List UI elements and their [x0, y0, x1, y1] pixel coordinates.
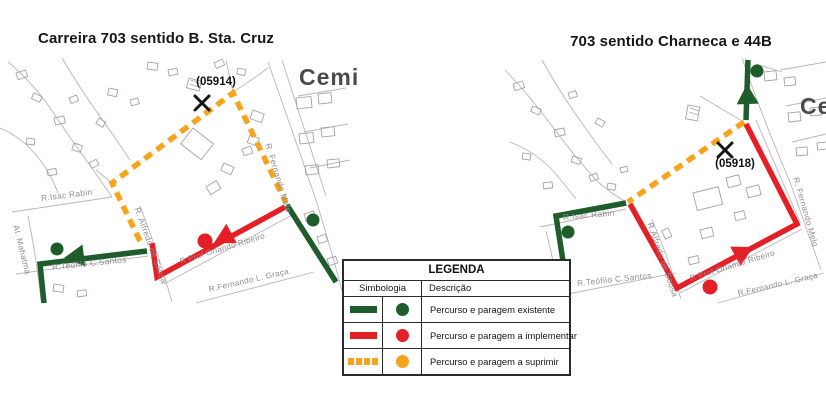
legend-existing-stop-swatch: [396, 303, 409, 316]
legend-existing-line-swatch: [350, 306, 377, 313]
legend-implement-stop-swatch: [396, 329, 409, 342]
legend-column-descricao: Descrição: [421, 281, 569, 296]
right-cemetery-label: Ce: [800, 93, 826, 120]
legend-row-suppress: Percurso e paragem a suprimir: [344, 348, 569, 374]
left-removed-stop-x-marker: [195, 96, 209, 110]
legend-implement-description: Percurso e paragem a implementar: [421, 323, 577, 348]
right-implement-stop-dot: [703, 280, 718, 295]
left-panel-title: Carreira 703 sentido B. Sta. Cruz: [31, 30, 281, 47]
legend-title: LEGENDA: [344, 261, 569, 281]
left-removed-stop-code: (05914): [186, 76, 246, 88]
legend-suppress-description: Percurso e paragem a suprimir: [421, 349, 569, 374]
legend-header-row: Simbologia Descrição: [344, 281, 569, 297]
legend-row-existing: Percurso e paragem existente: [344, 297, 569, 322]
left-cemetery-label: Cemi: [299, 64, 359, 91]
right-panel-title: 703 sentido Charneca e 44B: [546, 33, 796, 50]
right-removed-stop-x-marker: [718, 143, 732, 157]
right-existing-stop-dot-west: [562, 226, 575, 239]
legend: LEGENDA Simbologia Descrição Percurso e …: [342, 259, 571, 376]
legend-existing-description: Percurso e paragem existente: [421, 297, 569, 322]
legend-row-implement: Percurso e paragem a implementar: [344, 322, 569, 348]
right-removed-stop-code: (05918): [705, 158, 765, 170]
left-map: [0, 52, 352, 314]
legend-implement-line-swatch: [350, 332, 377, 339]
left-existing-stop-dot-east: [307, 214, 320, 227]
right-existing-direction-arrow: [736, 84, 759, 105]
legend-suppress-stop-swatch: [396, 355, 409, 368]
route-change-figure: Carreira 703 sentido B. Sta. Cruz 703 se…: [0, 0, 826, 400]
right-existing-stop-dot-north: [751, 65, 764, 78]
legend-suppress-dashed-line-swatch: [348, 358, 378, 365]
left-existing-stop-dot-west: [51, 243, 64, 256]
legend-column-simbologia: Simbologia: [344, 281, 421, 296]
